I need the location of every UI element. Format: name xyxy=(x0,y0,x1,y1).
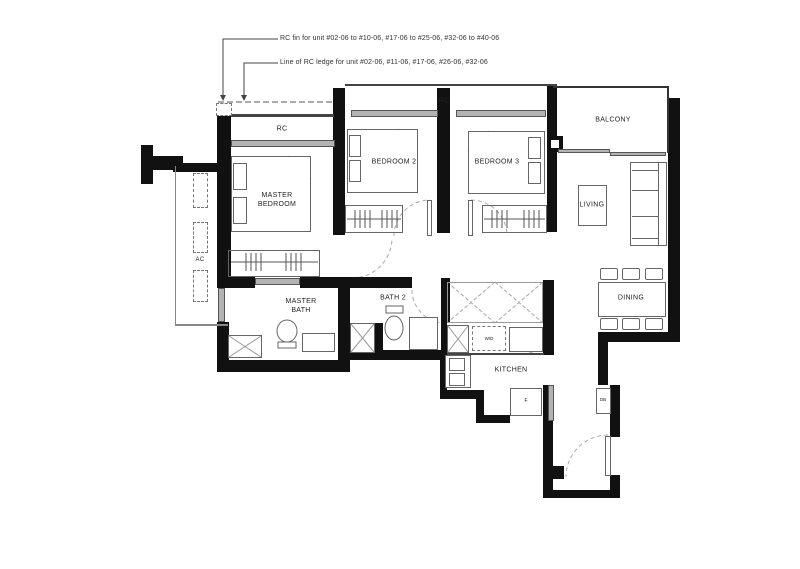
wall-masterbath-right xyxy=(338,288,350,360)
label-ac: AC xyxy=(196,257,205,265)
kitchen-sliding-door xyxy=(548,385,554,421)
master-wardrobe xyxy=(228,250,320,277)
bedroom2-wardrobe xyxy=(345,205,403,233)
dining-chair xyxy=(622,268,640,280)
window-bedroom3 xyxy=(456,110,546,117)
label-rc-master: RC xyxy=(277,124,288,133)
bedroom3-pillow xyxy=(528,162,541,184)
window-master-bedroom xyxy=(231,140,335,147)
dining-chair xyxy=(622,318,640,330)
master-bed-pillow xyxy=(233,163,247,190)
wall-bed2-bed3 xyxy=(437,88,450,233)
ac-unit xyxy=(193,222,208,253)
wall-master-bed2 xyxy=(333,88,345,235)
bedroom3-pillow xyxy=(528,137,541,159)
sofa-armrest-line xyxy=(632,170,658,171)
wall-kitchen-right xyxy=(543,280,554,355)
dining-chair xyxy=(645,268,663,280)
wall-door-nib xyxy=(552,466,564,479)
bath2-vanity xyxy=(409,317,438,350)
dining-chair xyxy=(600,318,618,330)
label-bedroom3: BEDROOM 3 xyxy=(469,157,525,166)
wall-dining-bottom xyxy=(598,332,678,342)
ac-unit xyxy=(193,270,208,302)
service-duct xyxy=(350,323,375,353)
label-bedroom2: BEDROOM 2 xyxy=(366,157,422,166)
label-db: DB xyxy=(600,397,606,403)
label-washer-dryer: W/D xyxy=(485,336,494,342)
wall-hallway-bottom xyxy=(345,277,412,288)
wall-duct-right xyxy=(375,323,383,360)
rc-ledge-above-kitchen xyxy=(447,282,543,323)
dining-chair xyxy=(645,318,663,330)
wall-duct-bottom xyxy=(348,353,375,360)
label-dining: DINING xyxy=(618,293,644,302)
entrance-door-leaf xyxy=(605,436,611,476)
wall-masterbath-bottom xyxy=(217,360,350,372)
window-bedroom2 xyxy=(351,110,438,117)
bedroom2-pillow xyxy=(349,160,361,182)
master-bed-pillow xyxy=(233,197,247,224)
dining-chair xyxy=(600,268,618,280)
line-master-rc-top xyxy=(231,114,334,117)
label-rc-upper: RC xyxy=(439,96,450,105)
sofa-cushion-line xyxy=(632,216,658,217)
wall-corridor-left xyxy=(543,417,553,497)
label-master-bedroom: MASTER BEDROOM xyxy=(247,191,307,209)
sofa-cushion-line xyxy=(632,190,658,191)
annotation-rc-fin: RC fin for unit #02-06 to #10-06, #17-06… xyxy=(280,35,499,42)
wall-entry-bottom xyxy=(543,490,620,498)
floor-plan: RC fin for unit #02-06 to #10-06, #17-06… xyxy=(0,0,800,569)
wall-kitchen-step xyxy=(476,390,484,423)
masterbath-vanity xyxy=(302,333,335,352)
line-rc-strip-top xyxy=(345,84,557,86)
label-living: LIVING xyxy=(580,200,605,209)
label-fridge: F xyxy=(524,398,527,405)
balcony-slider-right xyxy=(610,152,666,156)
sink-bowl xyxy=(449,358,465,371)
sink-bowl xyxy=(449,373,465,386)
masterbath-sliding-door xyxy=(255,278,300,285)
wall-bath2-bottom xyxy=(375,350,447,360)
label-master-bath: MASTER BATH xyxy=(275,297,327,315)
hob xyxy=(509,327,543,352)
sofa-back-line xyxy=(658,163,659,245)
label-bath2: BATH 2 xyxy=(376,293,410,302)
sofa-armrest-line xyxy=(632,238,658,239)
bedroom2-door-leaf xyxy=(427,200,432,236)
label-kitchen: KITCHEN xyxy=(495,365,528,374)
wall-masterbath-top-right xyxy=(300,277,350,288)
wall-corridor-right-upper xyxy=(610,385,620,437)
wall-corridor-dining xyxy=(598,332,608,385)
ac-unit xyxy=(193,173,208,208)
label-balcony: BALCONY xyxy=(595,115,631,124)
bedroom2-pillow xyxy=(349,135,361,157)
sofa xyxy=(630,162,667,246)
balcony-slider-left xyxy=(558,149,610,153)
wall-under-fridge xyxy=(484,415,510,423)
wall-right-exterior xyxy=(668,98,680,342)
service-duct xyxy=(447,325,469,353)
annotation-rc-ledge: Line of RC ledge for unit #02-06, #11-06… xyxy=(280,59,488,66)
bedroom3-wardrobe xyxy=(482,205,547,233)
rc-fin-box xyxy=(216,103,232,116)
masterbath-shower xyxy=(228,335,262,358)
bedroom3-door-leaf xyxy=(468,200,473,236)
window-masterbath xyxy=(218,288,225,322)
